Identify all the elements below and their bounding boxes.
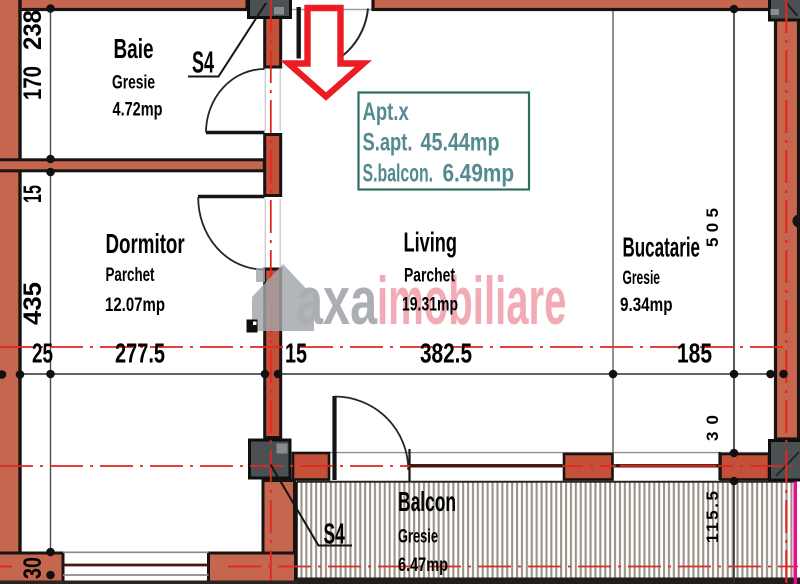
svg-text:S.balcon.: S.balcon. [363,160,434,187]
svg-text:45.44mp: 45.44mp [421,128,500,156]
svg-text:S.apt.: S.apt. [363,128,413,156]
svg-text:Living: Living [404,227,458,258]
svg-text:Balcon: Balcon [398,486,456,517]
svg-text:277.5: 277.5 [115,338,165,369]
svg-text:axa: axa [296,262,378,339]
svg-text:S4: S4 [192,46,214,80]
svg-text:Parchet: Parchet [404,265,455,287]
svg-text:238: 238 [19,10,47,50]
svg-text:19.31mp: 19.31mp [402,294,458,316]
svg-text:9.34mp: 9.34mp [620,294,673,316]
svg-text:Gresie: Gresie [398,526,438,548]
svg-text:30: 30 [19,557,47,579]
svg-text:Dormitor: Dormitor [106,228,185,259]
svg-text:115.5: 115.5 [703,491,722,543]
svg-text:4.72mp: 4.72mp [113,99,163,121]
svg-text:6.47mp: 6.47mp [398,554,448,576]
svg-text:15: 15 [19,185,47,203]
svg-text:6.49mp: 6.49mp [443,159,515,187]
svg-text:Parchet: Parchet [106,264,155,286]
svg-text:Bucatarie: Bucatarie [623,232,701,263]
svg-text:Baie: Baie [114,33,154,64]
svg-text:Gresie: Gresie [112,72,155,94]
svg-text:170: 170 [19,66,47,100]
svg-text:15: 15 [285,338,307,369]
svg-text:25: 25 [32,338,53,369]
svg-text:185: 185 [677,338,712,369]
svg-text:382.5: 382.5 [420,338,472,369]
svg-text:12.07mp: 12.07mp [105,294,165,316]
svg-text:435: 435 [19,282,47,325]
svg-text:Apt.x: Apt.x [363,97,410,125]
svg-text:Gresie: Gresie [623,267,661,289]
svg-text:505: 505 [703,208,722,247]
